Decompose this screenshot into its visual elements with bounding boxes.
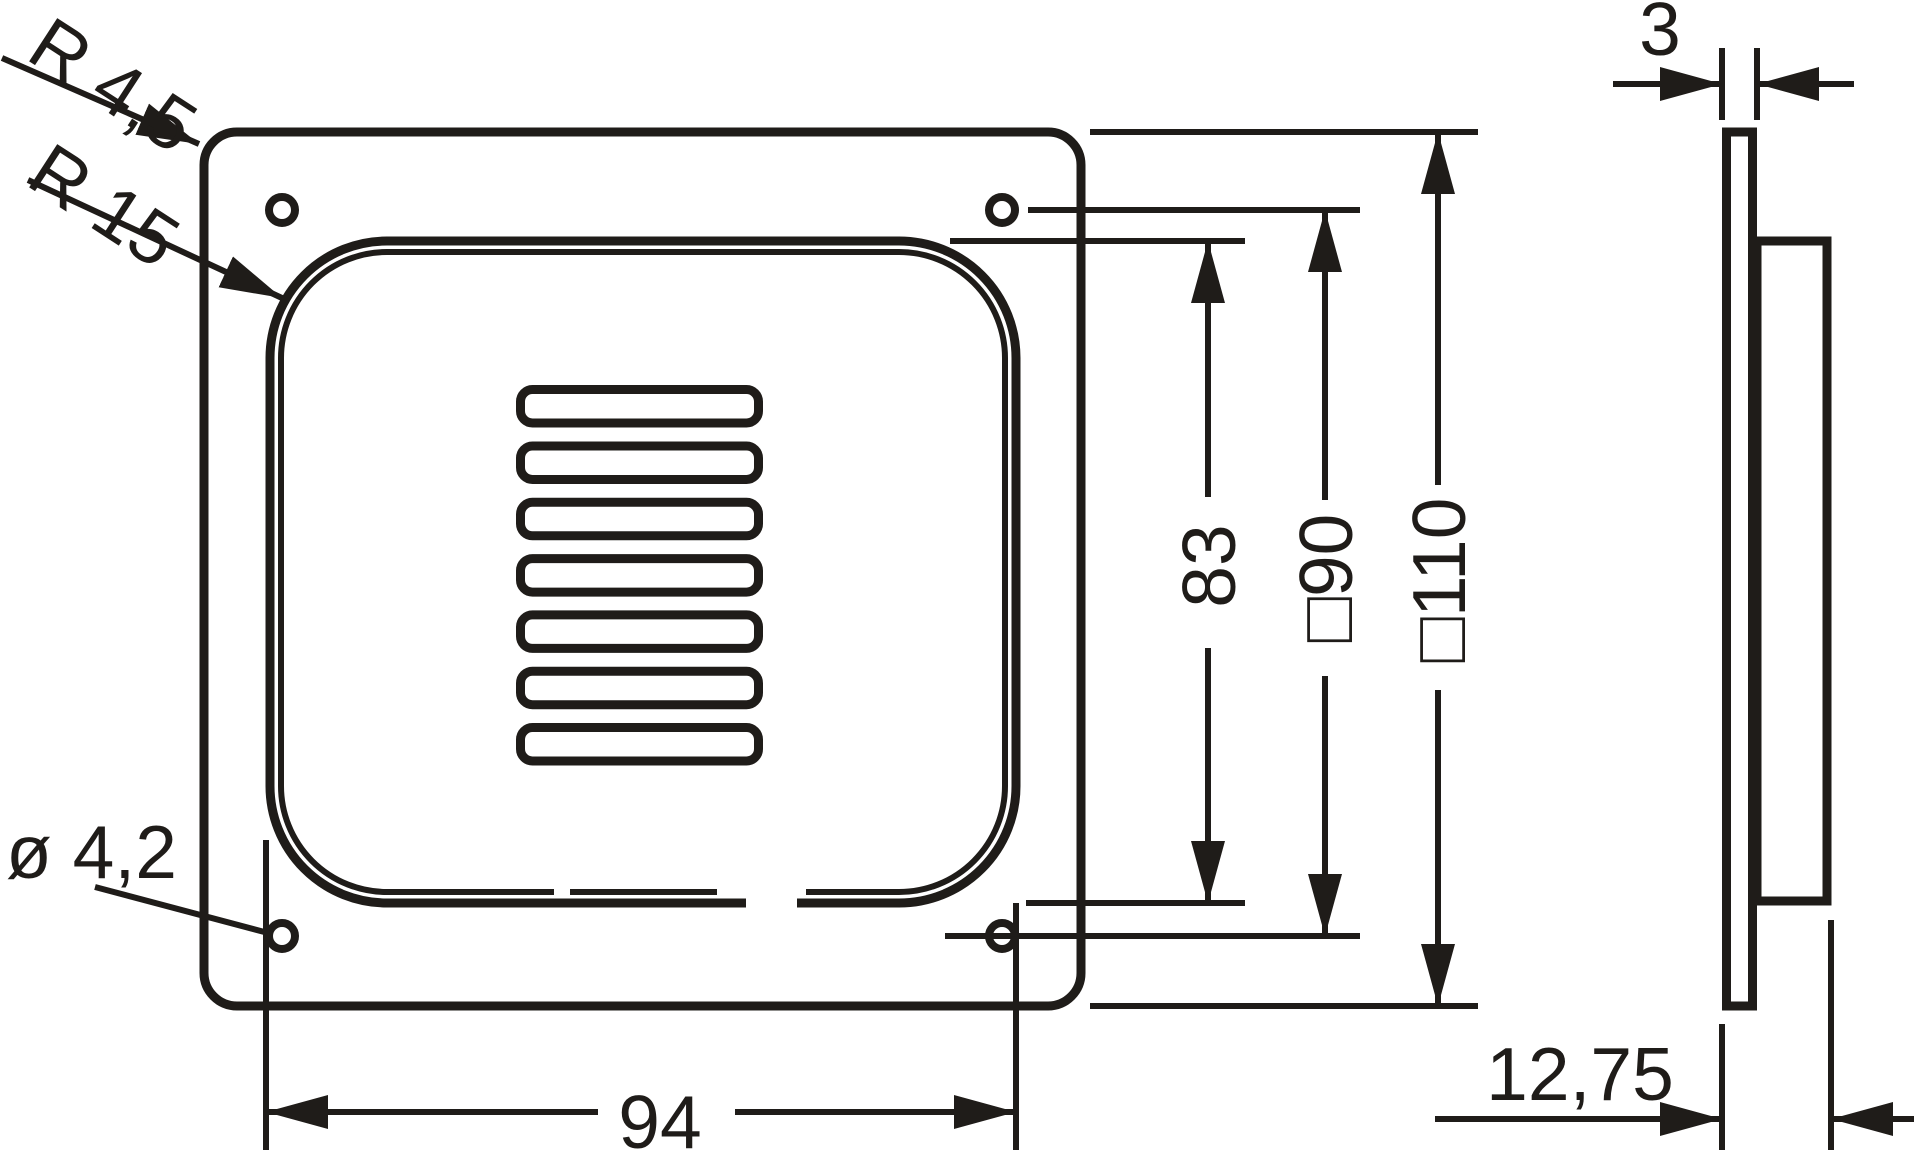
grille-slot bbox=[521, 728, 759, 762]
front-view bbox=[204, 132, 1081, 1006]
mounting-hole-top-left bbox=[269, 197, 295, 223]
recess-notch-mask bbox=[554, 883, 570, 898]
side-view bbox=[1727, 132, 1828, 1006]
grille-slot bbox=[521, 446, 759, 480]
label-hole-diameter: ø 4,2 bbox=[6, 810, 177, 894]
mounting-hole-bottom-left bbox=[269, 923, 295, 949]
dimension-12-75: 12,75 bbox=[1435, 920, 1914, 1150]
grille-slot bbox=[521, 559, 759, 593]
grille-slot bbox=[521, 615, 759, 649]
dimension-label-94: 94 bbox=[618, 1080, 701, 1156]
dimension-label-90: □90 bbox=[1284, 514, 1368, 643]
leader-line bbox=[95, 887, 272, 934]
grille-slot bbox=[521, 390, 759, 424]
grille-slot bbox=[521, 671, 759, 705]
dimension-label-12-75: 12,75 bbox=[1486, 1032, 1674, 1116]
leader-corner-radius-outer: R 4,5 bbox=[2, 1, 211, 169]
recess-outline-inner bbox=[281, 252, 1005, 892]
dimension-label-3: 3 bbox=[1639, 0, 1681, 71]
recess-notch-mask bbox=[717, 883, 806, 898]
recess-outline-outer bbox=[270, 241, 1016, 903]
dimension-94: 94 bbox=[266, 840, 1016, 1156]
side-recess-box-outline bbox=[1757, 241, 1827, 901]
technical-drawing-page: 94 83 □90 □110 3 12,75 R 4 bbox=[0, 0, 1914, 1156]
side-plate-outline bbox=[1727, 132, 1753, 1006]
dimension-83: 83 bbox=[950, 241, 1251, 903]
dimension-drawing: 94 83 □90 □110 3 12,75 R 4 bbox=[0, 0, 1914, 1156]
leader-hole-diameter: ø 4,2 bbox=[6, 810, 272, 934]
recess-notch-mask bbox=[746, 896, 797, 911]
grille-slot bbox=[521, 502, 759, 536]
label-corner-radius-outer: R 4,5 bbox=[15, 1, 211, 169]
dimension-3: 3 bbox=[1613, 0, 1854, 120]
dimension-label-83: 83 bbox=[1167, 524, 1251, 607]
mounting-hole-top-right bbox=[989, 197, 1015, 223]
grille-slots bbox=[521, 390, 759, 762]
dimension-label-110: □110 bbox=[1397, 498, 1481, 663]
